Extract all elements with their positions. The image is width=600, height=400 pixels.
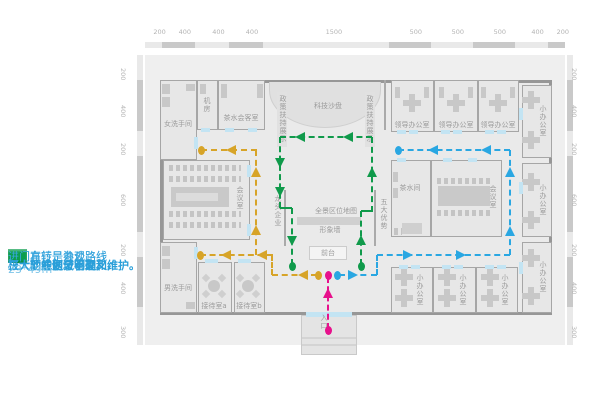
room-small-office-mid-right — [522, 163, 552, 237]
door-mark — [238, 259, 251, 263]
room-small-office-b1-label: 小办公室 — [416, 274, 424, 306]
door-mark — [519, 108, 523, 120]
route-office-line-arrow — [505, 226, 515, 236]
route-tour-line-arrow — [295, 132, 305, 142]
furniture — [424, 87, 429, 98]
route-tour-line-arrow — [287, 236, 297, 246]
room-small-office-top-right-label: 小办公室 — [539, 105, 547, 137]
chair-row — [394, 228, 402, 235]
furniture — [162, 246, 170, 256]
room-reception-b-label: 接待室b — [236, 302, 261, 310]
route-office-line-segment — [509, 150, 511, 255]
route-office-line-arrow — [481, 145, 491, 155]
room-conference-left-label: 会议室 — [236, 186, 244, 210]
desk — [528, 91, 534, 109]
route-negotiation-line-arrow — [226, 145, 236, 155]
route-negotiation-line-endpoint — [198, 146, 205, 155]
furniture — [162, 84, 170, 94]
round-table — [208, 280, 220, 292]
top-ruler-segment — [431, 42, 473, 48]
door-mark — [441, 130, 450, 134]
top-ruler-segment — [515, 42, 549, 48]
room-small-office-mid-right-label: 小办公室 — [539, 184, 547, 216]
desk — [528, 131, 534, 149]
furniture — [186, 302, 195, 309]
room-leader-office-3-label: 领导办公室 — [481, 121, 516, 129]
route-entrance-line-endpoint — [325, 271, 332, 280]
room-leader-office-2-label: 领导办公室 — [439, 121, 474, 129]
furniture — [257, 84, 263, 98]
door-mark — [485, 130, 494, 134]
furniture — [176, 193, 218, 201]
desk — [528, 211, 534, 229]
furniture — [439, 87, 444, 98]
route-tour-line-arrow — [356, 235, 366, 245]
room-small-office-bottom-right-label: 小办公室 — [539, 261, 547, 293]
route-tour-line-arrow — [343, 132, 353, 142]
label-tech-sandbox: 科技沙盘 — [314, 102, 342, 110]
furniture — [468, 87, 473, 98]
route-office-line-arrow — [428, 145, 438, 155]
room-small-office-bottom-right — [522, 242, 552, 313]
door-mark — [497, 265, 506, 269]
furniture — [221, 84, 227, 98]
desk — [487, 268, 493, 286]
left-ruler-segment — [137, 55, 143, 80]
route-tour-line-arrow — [275, 187, 285, 197]
furniture — [186, 84, 195, 91]
left-ruler-segment — [137, 80, 143, 130]
route-negotiation-line-arrow — [221, 250, 231, 260]
furniture — [162, 259, 170, 269]
route-tour-line-segment — [280, 136, 372, 138]
chair-row — [169, 211, 241, 217]
left-ruler-segment — [137, 307, 143, 345]
furniture — [162, 97, 170, 107]
route-entrance-line-arrow — [323, 288, 333, 298]
room-men-restroom-label: 男洗手间 — [164, 284, 192, 292]
route-negotiation-line-segment — [255, 150, 257, 255]
route-entrance-line-segment — [327, 277, 329, 329]
left-ruler-segment — [137, 257, 143, 307]
furniture — [393, 188, 398, 198]
door-mark — [443, 158, 452, 162]
chair-row — [437, 210, 491, 216]
room-leader-office-1-label: 领导办公室 — [395, 121, 430, 129]
furniture — [402, 223, 422, 234]
image-wall — [297, 217, 361, 225]
door-mark — [485, 265, 494, 269]
label-five-advantages: 五大优势 — [380, 198, 388, 230]
label-panorama-map: 全景区位地图 — [315, 207, 357, 215]
door-mark — [442, 265, 451, 269]
chair-row — [437, 178, 491, 184]
door-mark — [409, 130, 418, 134]
route-negotiation-line-arrow — [251, 225, 261, 235]
top-ruler-segment — [548, 42, 565, 48]
entrance-door — [306, 312, 352, 317]
desk — [444, 289, 450, 307]
door-mark — [225, 128, 234, 132]
hall-wall-stub-left — [284, 190, 286, 246]
desk — [444, 268, 450, 286]
top-ruler-segment — [195, 42, 229, 48]
desk — [401, 268, 407, 286]
route-office-line-segment — [376, 255, 378, 275]
desk — [528, 249, 534, 267]
top-ruler-segment — [145, 42, 162, 48]
room-reception-a-label: 接待室a — [201, 302, 226, 310]
desk — [409, 94, 415, 112]
room-machine-label: 机房 — [203, 97, 211, 113]
furniture — [395, 87, 400, 98]
desk — [495, 94, 501, 112]
room-small-office-top-right — [522, 85, 552, 158]
room-tea-reception-label: 茶水会客室 — [224, 114, 259, 122]
furniture — [481, 87, 486, 98]
vestibule-step — [302, 337, 356, 339]
left-ruler-segment — [137, 232, 143, 257]
route-tour-line-endpoint — [289, 262, 296, 271]
route-office-line-arrow — [403, 250, 413, 260]
door-mark — [411, 265, 420, 269]
door-mark — [454, 265, 463, 269]
route-office-line-arrow — [348, 270, 358, 280]
hall-wall-right — [384, 80, 386, 130]
room-women-restroom-label: 女洗手间 — [164, 120, 192, 128]
top-ruler-segment — [162, 42, 196, 48]
route-office-line-arrow — [505, 167, 515, 177]
furniture — [393, 172, 398, 182]
route-negotiation-line-arrow — [298, 270, 308, 280]
door-mark — [519, 182, 523, 194]
door-mark — [248, 128, 257, 132]
route-negotiation-line-endpoint — [315, 271, 322, 280]
chair-row — [169, 222, 241, 228]
route-office-line-segment — [339, 274, 377, 276]
route-office-line-endpoint — [334, 271, 341, 280]
room-conference-right-label: 会议室 — [489, 185, 497, 209]
chair-row — [169, 176, 241, 182]
top-ruler-segment — [389, 42, 431, 48]
top-ruler-segment — [473, 42, 515, 48]
door-mark — [497, 130, 506, 134]
route-office-line-segment — [377, 254, 510, 256]
door-mark — [468, 158, 477, 162]
door-mark — [201, 128, 210, 132]
entrance-vestibule — [301, 315, 357, 355]
desk — [401, 289, 407, 307]
route-entrance-line-endpoint — [325, 326, 332, 335]
route-tour-line-segment — [279, 137, 281, 208]
left-ruler-segment — [137, 131, 143, 156]
route-negotiation-line-arrow — [257, 250, 267, 260]
route-tour-line-arrow — [367, 167, 377, 177]
route-tour-line-endpoint — [358, 262, 365, 271]
door-mark — [453, 130, 462, 134]
route-negotiation-line-endpoint — [197, 251, 204, 260]
floor-plan-infographic: 进门右转是办公路线 进门左转是洽谈路线 进门直行是参观路线 三大动线划分明确, … — [0, 0, 600, 400]
door-mark — [397, 130, 406, 134]
furniture — [200, 84, 206, 94]
door-mark — [519, 262, 523, 274]
route-negotiation-line-segment — [272, 274, 317, 276]
door-mark — [205, 259, 218, 263]
desk — [528, 173, 534, 191]
desk — [528, 287, 534, 305]
vestibule-step — [302, 344, 356, 346]
door-mark — [397, 158, 406, 162]
desk — [487, 289, 493, 307]
label-image-wall: 形象墙 — [320, 226, 341, 234]
room-small-office-b2-label: 小办公室 — [459, 274, 467, 306]
top-ruler-segment — [229, 42, 263, 48]
furniture — [510, 87, 515, 98]
room-small-office-b3-label: 小办公室 — [501, 274, 509, 306]
route-office-line-segment — [398, 149, 510, 151]
furniture — [438, 186, 490, 206]
door-mark — [194, 137, 198, 149]
desk — [453, 94, 459, 112]
left-ruler-segment — [137, 156, 143, 232]
room-tea-label: 茶水间 — [400, 184, 421, 192]
route-tour-line-arrow — [275, 158, 285, 168]
round-table — [242, 280, 254, 292]
route-office-line-endpoint — [395, 146, 402, 155]
door-mark — [399, 265, 408, 269]
chair-row — [169, 165, 241, 171]
route-negotiation-line-arrow — [251, 167, 261, 177]
route-negotiation-line-segment — [271, 255, 273, 275]
route-office-line-arrow — [456, 250, 466, 260]
hall-wall-stub-right — [374, 190, 376, 246]
label-front-desk: 前台 — [321, 249, 335, 257]
top-ruler-segment — [263, 42, 389, 48]
plan-size-label: 23*49m — [8, 260, 52, 279]
